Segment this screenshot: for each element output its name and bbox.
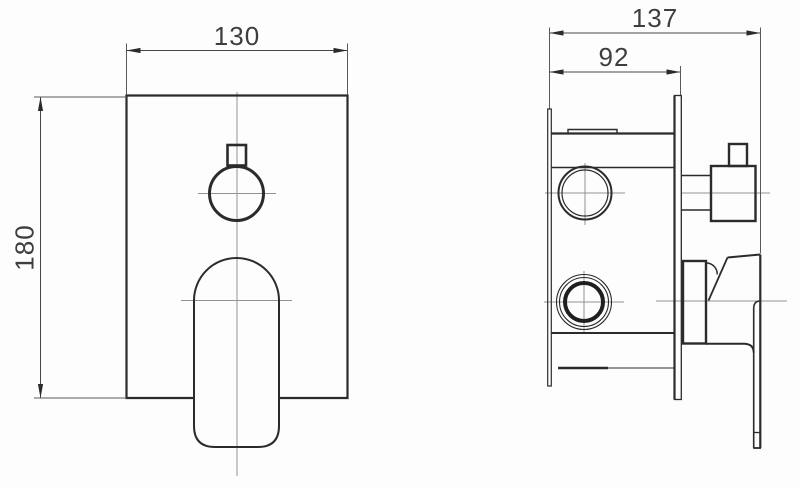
arrowhead-bottom [38, 384, 43, 398]
lever-handle [683, 255, 761, 449]
arrowhead-right [747, 30, 761, 35]
dimension-front-height: 180 [10, 97, 127, 398]
arrowhead-left [127, 48, 141, 53]
lever-fillet-arc [707, 263, 718, 275]
arrowhead-right [667, 69, 681, 74]
front-view: 130 180 [10, 21, 348, 476]
arrowhead-left [550, 69, 564, 74]
extension-lines [34, 97, 127, 398]
arrowhead-left [550, 30, 564, 35]
dimension-label-side-total-depth: 137 [632, 3, 678, 33]
dimension-label-front-height: 180 [10, 224, 40, 270]
arrowhead-right [334, 48, 348, 53]
technical-drawing-canvas: 130 180 [0, 0, 800, 489]
dimension-label-side-body-depth: 92 [599, 42, 630, 72]
dimension-side-body-depth: 92 [550, 42, 681, 95]
dimension-label-front-width: 130 [214, 21, 260, 51]
lever-top-edge [728, 255, 761, 258]
mounting-bracket [548, 109, 552, 386]
extension-lines [127, 44, 348, 96]
dimension-front-width: 130 [127, 21, 348, 95]
lever-base-bottom [706, 344, 754, 353]
arrowhead-top [38, 97, 43, 111]
lever-left-edge [754, 301, 760, 448]
diverter-knob-stem-side [729, 144, 747, 166]
technical-drawing: 130 180 [0, 0, 800, 489]
side-view: 137 92 [544, 3, 787, 448]
lever-hub [683, 261, 706, 344]
